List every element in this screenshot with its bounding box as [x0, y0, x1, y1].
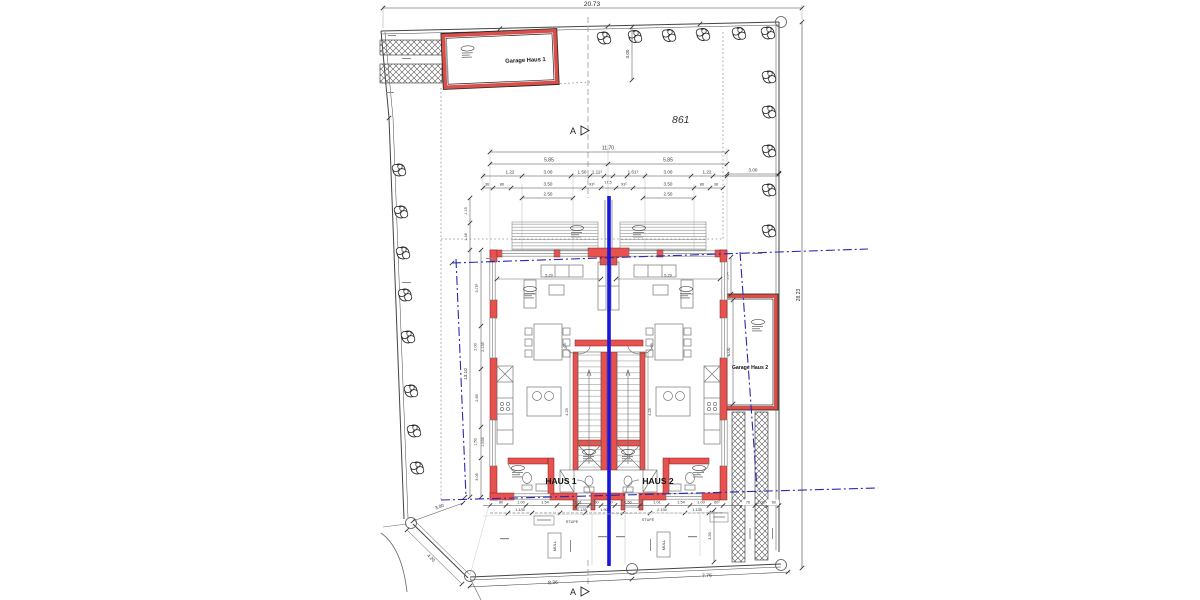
- bottom-left-dim: 8.36: [548, 580, 558, 586]
- dim-r4: 17,5: [604, 181, 611, 185]
- tree: [762, 71, 776, 83]
- dim-r3: 1.11⁵: [592, 170, 603, 175]
- driveway-hatch-left: [380, 35, 442, 283]
- dim-bay-h2: 1.05: [650, 343, 654, 350]
- tree: [761, 27, 775, 39]
- dim-total: 11.70: [602, 146, 614, 152]
- dim-r3: 1.50: [578, 170, 587, 175]
- north-offset-dim: 3.00: [625, 49, 630, 58]
- tree: [762, 225, 776, 237]
- muell-label-2: MÜLL: [662, 540, 666, 550]
- dim-b1: .60: [607, 501, 612, 505]
- dim-b1: 1.01: [574, 501, 581, 505]
- dim-b1: 1.54: [541, 501, 548, 505]
- dim-left: 3.05: [475, 473, 479, 480]
- dim-r4: 86: [700, 183, 704, 187]
- terrace-haus2: [620, 222, 706, 250]
- plan-canvas: Garage Haus 1 Garage Haus 2 6.00 A A 20.…: [0, 0, 1200, 600]
- dim-site-top: 20.73: [381, 1, 804, 28]
- dim-r4: 86: [500, 183, 504, 187]
- dim-half-right: 5.85: [663, 158, 673, 164]
- tree: [392, 164, 406, 176]
- tree: [404, 385, 418, 397]
- dim-r4: 3.50: [544, 182, 553, 187]
- dim-left: 1.50: [474, 438, 478, 445]
- dim-stair-h2: 4.25: [648, 408, 652, 415]
- dim-b1: 1.00: [517, 501, 524, 505]
- stufe-label-1: STUFE: [566, 520, 579, 524]
- section-marker-top: A: [570, 126, 576, 136]
- kitchen-counter: [704, 366, 720, 444]
- architectural-site-plan: Garage Haus 1 Garage Haus 2 6.00 A A 20.…: [0, 0, 1200, 600]
- dim-left: 2.135: [481, 342, 485, 352]
- dim-left: 2.85: [475, 394, 479, 401]
- dim-left: 1.15: [464, 207, 468, 214]
- toilet: [686, 473, 695, 484]
- dim-window-right: 2.50: [664, 192, 673, 197]
- tree: [398, 289, 412, 301]
- dim-r4: 93⁵: [589, 183, 595, 187]
- dim-r3: 3.00: [664, 170, 673, 175]
- site-right-depth: 28.23: [796, 289, 802, 302]
- dim-r3: 1.22: [506, 170, 515, 175]
- dim-b2: 1.90: [600, 508, 607, 512]
- muell-label-1: MÜLL: [553, 541, 557, 551]
- dim-b1: 1.00: [757, 501, 764, 505]
- section-marker-bottom: A: [570, 587, 576, 597]
- toilet: [523, 473, 532, 484]
- terrace-haus1: [512, 222, 598, 250]
- dim-left: 3.75⁵: [475, 283, 479, 292]
- dim-half-left: 5.85: [544, 158, 554, 164]
- party-wall-axis: [607, 196, 611, 566]
- stufe-label-2: STUFE: [642, 518, 655, 522]
- tree: [762, 184, 776, 196]
- tree: [662, 30, 676, 42]
- dim-b2: 1.135: [515, 508, 525, 512]
- dim-window-left: 2.50: [544, 192, 553, 197]
- tree: [597, 32, 611, 44]
- dining-table: [655, 324, 683, 360]
- dim-r3: 3.00: [544, 170, 553, 175]
- kitchen-island: [656, 387, 690, 416]
- dim-r4: 3.50: [664, 182, 673, 187]
- tree: [732, 28, 746, 40]
- room-tag: [680, 286, 693, 298]
- parcel-number: 861: [672, 114, 690, 126]
- dim-r3: 1.22: [703, 170, 712, 175]
- dim-r4: 36: [714, 183, 718, 187]
- corner-diag-dim: 4.20: [426, 553, 436, 563]
- kitchen-island: [527, 387, 561, 416]
- dim-b2: 2.135: [657, 508, 667, 512]
- dim-b1: 60: [772, 501, 776, 505]
- haus2-label: HAUS 2: [642, 476, 673, 486]
- tree: [696, 29, 710, 41]
- tree: [396, 247, 410, 259]
- tree: [410, 462, 424, 474]
- dim-stair-h1: 4.25: [565, 408, 569, 415]
- dim-b1: 60⁵: [714, 501, 720, 505]
- dim-living-h2: 5.29: [664, 274, 671, 278]
- dim-left: 2.00: [474, 343, 478, 350]
- dim-right-south: 3.50: [708, 532, 712, 539]
- dim-b1: 80: [499, 501, 503, 505]
- dim-left: 1.535: [481, 437, 485, 447]
- tree: [628, 31, 642, 43]
- haus1-label: HAUS 1: [545, 476, 576, 486]
- tree: [407, 425, 421, 437]
- dim-left: 1.48: [464, 233, 468, 240]
- dim-b1: 1.50: [624, 501, 631, 505]
- dim-b2: 2.135: [577, 508, 587, 512]
- tree: [762, 106, 776, 118]
- dim-living-h1: 5.29: [545, 274, 552, 278]
- section-arrow-bottom-icon: [581, 587, 589, 596]
- kitchen-counter: [497, 366, 513, 444]
- walkway-hatch-right: [732, 412, 773, 562]
- dim-r4: 93⁵: [621, 183, 627, 187]
- dim-bay-h1: 1.05: [563, 343, 567, 350]
- bottom-right-dim: 7.76: [702, 573, 712, 579]
- dim-left-total: 13.10: [463, 368, 468, 380]
- dim-b1: 1.01: [653, 501, 660, 505]
- tree: [762, 145, 776, 157]
- tree: [394, 206, 408, 218]
- east-offset-dim: 3.00: [749, 168, 758, 173]
- garage2-label: Garage Haus 2: [732, 365, 768, 371]
- dim-b1: .60: [593, 501, 598, 505]
- site-top-width: 20.73: [584, 1, 601, 8]
- dim-r4: 36: [485, 183, 489, 187]
- dim-b1: 1.00: [697, 501, 704, 505]
- room-tag: [524, 286, 537, 298]
- dim-b2: 1.135: [692, 508, 702, 512]
- tree: [401, 331, 415, 343]
- dim-r3: 1.61⁵: [628, 170, 639, 175]
- dim-b1: 70: [746, 501, 750, 505]
- dim-chain-left: 1.15 1.48 13.10 3.75⁵ 2.00 2.135 2.85 1.…: [463, 196, 485, 499]
- corner-short-dim: 3.00: [434, 503, 445, 511]
- dim-b1: 1.54: [677, 501, 684, 505]
- dining-table: [534, 324, 562, 360]
- garage-1: Garage Haus 1: [441, 28, 559, 89]
